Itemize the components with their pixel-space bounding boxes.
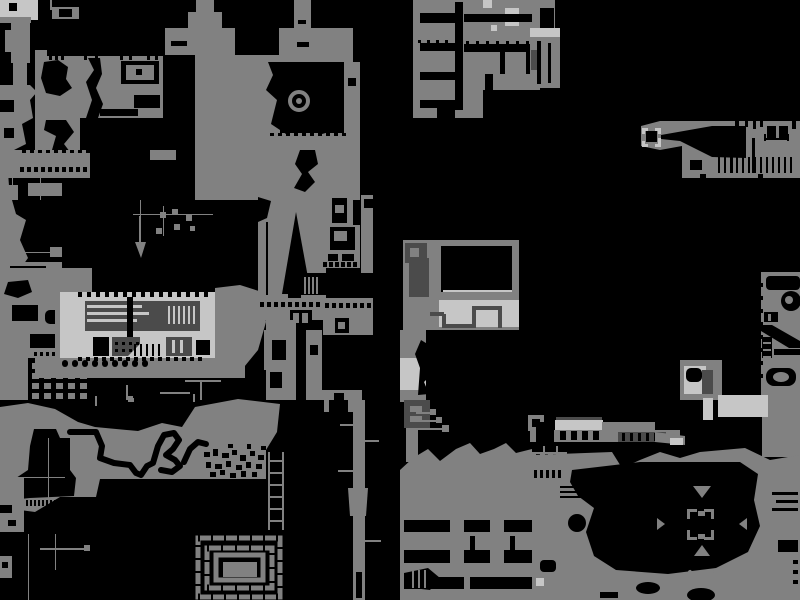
terrain-shape: [700, 174, 706, 178]
terrain-shape: [353, 262, 357, 267]
terrain-shape: [326, 133, 330, 136]
terrain-shape: [27, 167, 31, 172]
terrain-shape: [332, 303, 336, 308]
terrain-shape: [134, 95, 160, 108]
terrain-shape: [416, 420, 436, 422]
terrain-shape: [758, 174, 763, 178]
terrain-shape: [200, 382, 202, 400]
window-grid: [68, 393, 75, 399]
terrain-shape: [302, 302, 306, 307]
terrain-shape: [698, 534, 705, 539]
terrain-shape: [40, 548, 86, 550]
terrain-shape: [129, 342, 132, 345]
terrain-shape: [410, 248, 419, 257]
terrain-shape: [177, 292, 181, 297]
terrain-shape: [152, 344, 154, 356]
terrain-shape: [516, 41, 519, 44]
terrain-shape: [772, 157, 774, 173]
terrain-shape: [445, 40, 448, 43]
terrain-shape: [338, 322, 345, 329]
terrain-shape: [430, 312, 444, 316]
window-grid: [68, 383, 75, 389]
terrain-shape: [222, 453, 229, 458]
terrain-shape: [188, 306, 190, 324]
terrain-shape: [531, 50, 537, 70]
terrain-shape: [703, 398, 713, 420]
terrain-shape: [342, 254, 354, 261]
window-grid: [80, 383, 87, 389]
terrain-shape: [288, 302, 292, 307]
terrain-shape: [82, 360, 88, 367]
terrain-shape: [763, 349, 771, 351]
terrain-shape: [763, 356, 771, 358]
terrain-shape: [38, 150, 42, 153]
terrain-shape: [215, 464, 222, 469]
terrain-shape: [427, 40, 430, 43]
terrain-shape: [0, 505, 12, 513]
window-grid: [80, 393, 87, 399]
ladder: [268, 484, 284, 486]
terrain-shape: [76, 167, 80, 172]
terrain-shape: [560, 491, 590, 493]
terrain-shape: [55, 56, 58, 60]
terrain-shape: [48, 167, 52, 172]
terrain-shape: [186, 292, 190, 297]
terrain-shape: [793, 570, 798, 574]
terrain-shape: [100, 109, 138, 116]
terrain-shape: [87, 305, 142, 308]
terrain-shape: [763, 342, 771, 344]
terrain-shape: [92, 360, 98, 367]
terrain-shape: [272, 340, 286, 360]
terrain-shape: [136, 342, 139, 345]
terrain-shape: [38, 500, 40, 506]
terrain-shape: [112, 360, 118, 367]
terrain-shape: [323, 262, 327, 267]
terrain-shape: [344, 62, 360, 135]
terrain-shape: [132, 292, 136, 297]
terrain-shape: [532, 452, 536, 456]
terrain-shape: [87, 292, 91, 297]
terrain-shape: [168, 306, 170, 324]
terrain-shape: [9, 3, 17, 11]
terrain-shape: [266, 222, 268, 295]
terrain-shape: [0, 185, 18, 200]
cavern: [570, 462, 760, 574]
terrain-shape: [670, 438, 683, 445]
terrain-shape: [496, 41, 499, 44]
terrain-shape: [636, 582, 660, 594]
terrain-shape: [78, 357, 82, 361]
terrain-shape: [30, 150, 34, 153]
terrain-shape: [150, 150, 176, 160]
terrain-shape: [630, 433, 633, 441]
terrain-shape: [364, 199, 373, 208]
terrain-shape: [286, 133, 290, 136]
terrain-shape: [220, 470, 225, 475]
terrain-shape: [642, 128, 645, 134]
terrain-shape: [316, 277, 318, 294]
terrain-shape: [115, 349, 118, 352]
terrain-shape: [752, 138, 755, 173]
terrain-shape: [54, 150, 58, 153]
terrain-shape: [485, 74, 493, 104]
terrain-shape: [158, 344, 160, 356]
terrain-shape: [78, 150, 82, 153]
terrain-shape: [436, 40, 439, 43]
terrain-shape: [316, 302, 320, 307]
terrain-shape: [325, 303, 329, 308]
terrain-shape: [540, 560, 556, 572]
terrain-shape: [702, 370, 713, 396]
terrain-shape: [12, 178, 13, 200]
terrain-shape: [270, 372, 282, 388]
terrain-shape: [778, 157, 780, 173]
terrain-shape: [500, 52, 505, 74]
ladder: [268, 496, 284, 498]
terrain-shape: [404, 550, 532, 563]
terrain-shape: [132, 360, 138, 367]
terrain-shape: [742, 157, 744, 173]
terrain-shape: [420, 100, 456, 108]
ladder: [268, 508, 284, 510]
terrain-shape: [704, 537, 714, 540]
terrain-shape: [540, 454, 543, 457]
terrain-shape: [58, 500, 60, 506]
terrain-shape: [600, 592, 618, 598]
terrain-shape: [334, 231, 347, 241]
terrain-shape: [236, 465, 242, 470]
terrain-shape: [304, 277, 306, 294]
terrain-shape: [310, 133, 314, 136]
terrain-shape: [105, 292, 109, 297]
terrain-shape: [409, 258, 429, 297]
ladder: [268, 472, 284, 474]
terrain-shape: [334, 393, 344, 400]
terrain-shape: [34, 352, 37, 356]
terrain-shape: [140, 344, 142, 356]
terrain-shape: [793, 560, 798, 564]
terrain-shape: [552, 470, 555, 478]
terrain-shape: [96, 292, 100, 297]
terrain-shape: [348, 400, 353, 412]
terrain-shape: [658, 138, 661, 144]
terrain-shape: [548, 43, 551, 83]
terrain-shape: [443, 290, 512, 292]
terrain-shape: [84, 56, 87, 60]
terrain-shape: [139, 216, 141, 242]
terrain-shape: [412, 571, 414, 588]
terrain-shape: [430, 409, 436, 415]
terrain-shape: [30, 500, 32, 506]
terrain-shape: [12, 305, 38, 321]
terrain-shape: [147, 56, 150, 60]
terrain-shape: [190, 357, 194, 361]
terrain-shape: [353, 303, 357, 308]
terrain-shape: [52, 352, 55, 356]
terrain-shape: [334, 133, 338, 136]
terrain-shape: [537, 41, 541, 84]
terrain-shape: [28, 183, 62, 196]
terrain-shape: [441, 246, 512, 292]
terrain-shape: [34, 500, 36, 506]
terrain-shape: [150, 357, 154, 361]
terrain-shape: [365, 440, 379, 442]
terrain-shape: [560, 486, 590, 488]
terrain-shape: [768, 314, 771, 321]
terrain-shape: [126, 357, 130, 361]
terrain-shape: [20, 167, 24, 172]
terrain-shape: [48, 438, 49, 498]
terrain-shape: [102, 357, 106, 361]
terrain-shape: [173, 306, 175, 324]
terrain-shape: [646, 131, 657, 142]
terrain-shape: [210, 472, 216, 477]
terrain-shape: [118, 357, 122, 361]
terrain-shape: [536, 422, 554, 442]
terrain-shape: [759, 361, 763, 365]
terrain-shape: [745, 121, 748, 127]
terrain-shape: [0, 150, 90, 178]
terrain-shape: [114, 292, 118, 297]
terrain-shape: [546, 470, 549, 478]
terrain-shape: [172, 340, 175, 353]
terrain-shape: [690, 160, 702, 170]
terrain-shape: [278, 133, 282, 136]
terrain-shape: [753, 121, 756, 129]
terrain-shape: [46, 352, 49, 356]
terrain-shape: [329, 262, 333, 267]
terrain-shape: [230, 473, 236, 478]
terrain-shape: [470, 536, 475, 550]
terrain-shape: [483, 0, 492, 8]
terrain-shape: [182, 357, 186, 361]
window-grid: [44, 383, 51, 389]
terrain-shape: [129, 349, 132, 352]
terrain-shape: [793, 580, 798, 584]
terrain-shape: [267, 302, 271, 307]
terrain-shape: [274, 302, 278, 307]
terrain-shape: [196, 340, 210, 355]
terrain-shape: [232, 450, 237, 455]
terrain-shape: [638, 433, 641, 441]
terrain-shape: [72, 360, 78, 367]
terrain-shape: [772, 492, 798, 495]
terrain-shape: [140, 200, 141, 216]
terrain-shape: [759, 296, 763, 300]
terrain-shape: [115, 342, 118, 345]
terrain-shape: [404, 520, 532, 532]
terrain-shape: [698, 511, 705, 516]
terrain-shape: [55, 534, 56, 570]
terrain-shape: [760, 157, 762, 173]
terrain-shape: [766, 157, 768, 173]
terrain-shape: [540, 8, 554, 28]
terrain-shape: [490, 550, 504, 563]
terrain-shape: [310, 345, 318, 355]
terrain-shape: [270, 133, 274, 136]
terrain-shape: [766, 276, 800, 290]
terrain-shape: [297, 42, 309, 47]
window-grid: [56, 383, 63, 389]
terrain-shape: [240, 455, 246, 461]
terrain-shape: [206, 462, 211, 468]
terrain-shape: [226, 461, 231, 467]
terrain-shape: [136, 69, 142, 75]
terrain-shape: [62, 500, 64, 506]
terrain-shape: [324, 400, 329, 412]
terrain-shape: [335, 262, 339, 267]
terrain-shape: [767, 126, 776, 138]
terrain-shape: [735, 121, 739, 128]
terrain-shape: [568, 514, 586, 532]
terrain-shape: [776, 500, 798, 503]
terrain-shape: [282, 452, 284, 530]
terrain-shape: [302, 133, 306, 136]
terrain-shape: [3, 477, 65, 478]
terrain-shape: [318, 133, 322, 136]
terrain-shape: [61, 56, 64, 60]
terrain-shape: [687, 537, 697, 540]
terrain-shape: [159, 292, 163, 297]
terrain-shape: [204, 292, 208, 297]
terrain-shape: [365, 540, 381, 542]
terrain-shape: [252, 472, 257, 477]
terrain-shape: [784, 157, 786, 173]
terrain-shape: [8, 520, 16, 526]
terrain-shape: [268, 452, 270, 530]
terrain-shape: [34, 167, 38, 172]
terrain-shape: [26, 500, 28, 506]
terrain-shape: [711, 509, 714, 519]
terrain-shape: [785, 296, 793, 304]
terrain-shape: [193, 306, 195, 324]
terrain-shape: [155, 56, 158, 60]
terrain-shape: [464, 44, 536, 52]
terrain-shape: [790, 157, 792, 173]
terrain-shape: [420, 13, 455, 23]
terrain-shape: [560, 431, 566, 440]
terrain-shape: [281, 302, 285, 307]
terrain-shape: [312, 277, 314, 294]
terrain-shape: [420, 43, 455, 51]
terrain-shape: [28, 534, 29, 600]
terrain-shape: [195, 292, 199, 297]
terrain-shape: [204, 452, 210, 457]
terrain-shape: [416, 412, 430, 414]
terrain-shape: [335, 205, 344, 213]
terrain-shape: [46, 500, 48, 506]
terrain-shape: [62, 167, 66, 172]
terrain-shape: [250, 306, 258, 314]
terrain-shape: [128, 396, 133, 400]
terrain-shape: [213, 449, 218, 456]
terrain-shape: [66, 500, 68, 506]
terrain-shape: [150, 292, 154, 297]
terrain-shape: [110, 357, 114, 361]
terrain-shape: [174, 357, 178, 361]
terrain-shape: [339, 303, 343, 308]
terrain-shape: [439, 300, 519, 327]
terrain-shape: [80, 440, 81, 497]
terrain-shape: [49, 56, 52, 60]
terrain-shape: [5, 30, 15, 52]
terrain-shape: [420, 72, 455, 80]
terrain-shape: [718, 395, 768, 417]
terrain-shape: [655, 144, 661, 147]
terrain-shape: [141, 292, 145, 297]
terrain-shape: [347, 262, 351, 267]
terrain-shape: [436, 417, 442, 423]
terrain-shape: [736, 157, 738, 173]
terrain-shape: [367, 303, 371, 308]
terrain-shape: [134, 357, 138, 361]
terrain-shape: [450, 550, 464, 563]
terrain-shape: [466, 41, 469, 44]
terrain-shape: [341, 262, 345, 267]
terrain-shape: [437, 108, 455, 118]
terrain-shape: [163, 206, 164, 236]
terrain-shape: [760, 121, 763, 127]
terrain-shape: [424, 570, 426, 588]
terrain-shape: [122, 360, 128, 367]
terrain-shape: [472, 306, 500, 310]
terrain-shape: [160, 212, 166, 218]
terrain-shape: [348, 78, 356, 86]
terrain-shape: [241, 471, 246, 477]
terrain-shape: [93, 337, 109, 356]
terrain-shape: [348, 488, 368, 516]
terrain-shape: [540, 470, 543, 478]
world-map[interactable]: [0, 0, 800, 600]
terrain-shape: [787, 134, 789, 141]
terrain-shape: [556, 446, 558, 458]
terrain-shape: [356, 572, 362, 598]
terrain-shape: [642, 144, 648, 147]
terrain-shape: [759, 309, 763, 313]
terrain-shape: [491, 25, 497, 31]
terrain-shape: [122, 349, 125, 352]
window-grid: [44, 393, 51, 399]
terrain-shape: [78, 292, 82, 297]
terrain-shape: [2, 562, 8, 568]
terrain-shape: [724, 157, 726, 173]
terrain-shape: [250, 451, 255, 456]
terrain-shape: [338, 470, 353, 472]
terrain-shape: [246, 462, 251, 468]
terrain-shape: [178, 306, 180, 324]
terrain-shape: [306, 330, 322, 400]
terrain-shape: [62, 150, 66, 153]
terrain-shape: [40, 178, 41, 200]
terrain-shape: [190, 226, 195, 231]
terrain-shape: [180, 340, 183, 353]
terrain-shape: [530, 28, 560, 37]
terrain-shape: [413, 33, 540, 78]
terrain-shape: [762, 337, 772, 358]
terrain-shape: [171, 41, 187, 46]
terrain-shape: [773, 372, 789, 382]
terrain-shape: [95, 56, 98, 60]
terrain-shape: [526, 41, 529, 44]
window-grid: [32, 393, 39, 399]
terrain-shape: [684, 386, 702, 394]
terrain-shape: [571, 431, 577, 440]
terrain-shape: [778, 540, 798, 552]
terrain-shape: [42, 500, 44, 506]
terrain-shape: [450, 520, 464, 532]
terrain-shape: [548, 453, 553, 456]
